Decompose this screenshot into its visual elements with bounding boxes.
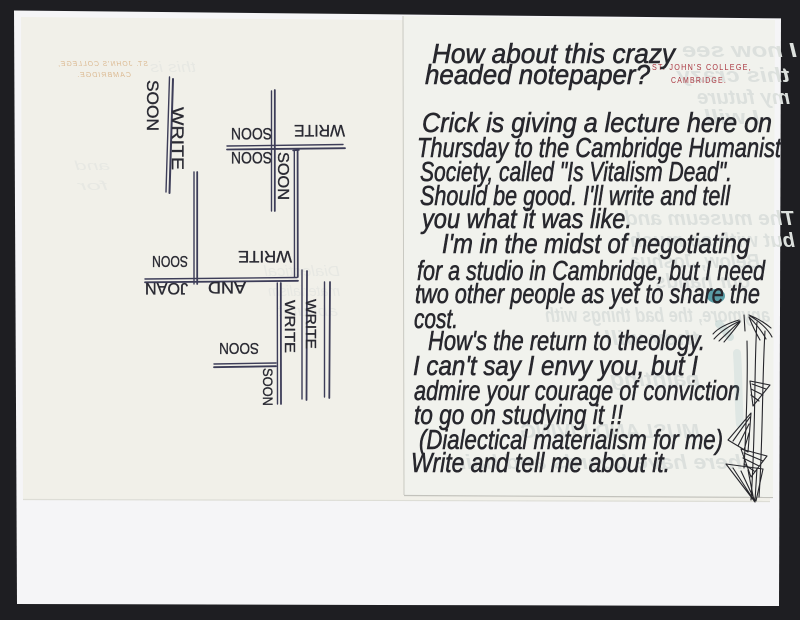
svg-text:headed notepaper?: headed notepaper?: [425, 59, 650, 90]
svg-text:two other people as yet to sha: two other people as yet to share the: [415, 278, 760, 309]
svg-text:WRITE: WRITE: [168, 107, 187, 170]
svg-text:CAMBRIDGE.: CAMBRIDGE.: [76, 72, 131, 79]
svg-text:SOON: SOON: [274, 152, 291, 200]
svg-text:JOAN: JOAN: [145, 279, 188, 298]
svg-text:SOON: SOON: [143, 80, 162, 131]
svg-text:SOON: SOON: [260, 368, 276, 406]
svg-text:WRITE: WRITE: [302, 299, 319, 349]
svg-text:Write and tell me about it.: Write and tell me about it.: [411, 447, 670, 478]
svg-text:WRITE: WRITE: [294, 121, 345, 140]
svg-text:and: and: [74, 158, 110, 173]
svg-text:my future: my future: [697, 87, 790, 109]
svg-text:SOON: SOON: [231, 124, 272, 143]
svg-text:The museum and: The museum and: [624, 208, 795, 230]
svg-text:WRITE: WRITE: [281, 300, 298, 353]
svg-text:for: for: [77, 178, 108, 193]
svg-text:SOON: SOON: [231, 148, 272, 167]
svg-text:WRITE: WRITE: [238, 247, 292, 266]
svg-text:I now see: I now see: [682, 40, 797, 62]
svg-text:SOON: SOON: [152, 252, 188, 269]
svg-text:ST. JOHN'S COLLEGE,: ST. JOHN'S COLLEGE,: [57, 61, 148, 68]
svg-text:CAMBRIDGE.: CAMBRIDGE.: [671, 75, 727, 85]
svg-text:AND: AND: [208, 278, 246, 297]
svg-text:this is: this is: [149, 59, 196, 76]
svg-text:SOON: SOON: [219, 339, 259, 356]
